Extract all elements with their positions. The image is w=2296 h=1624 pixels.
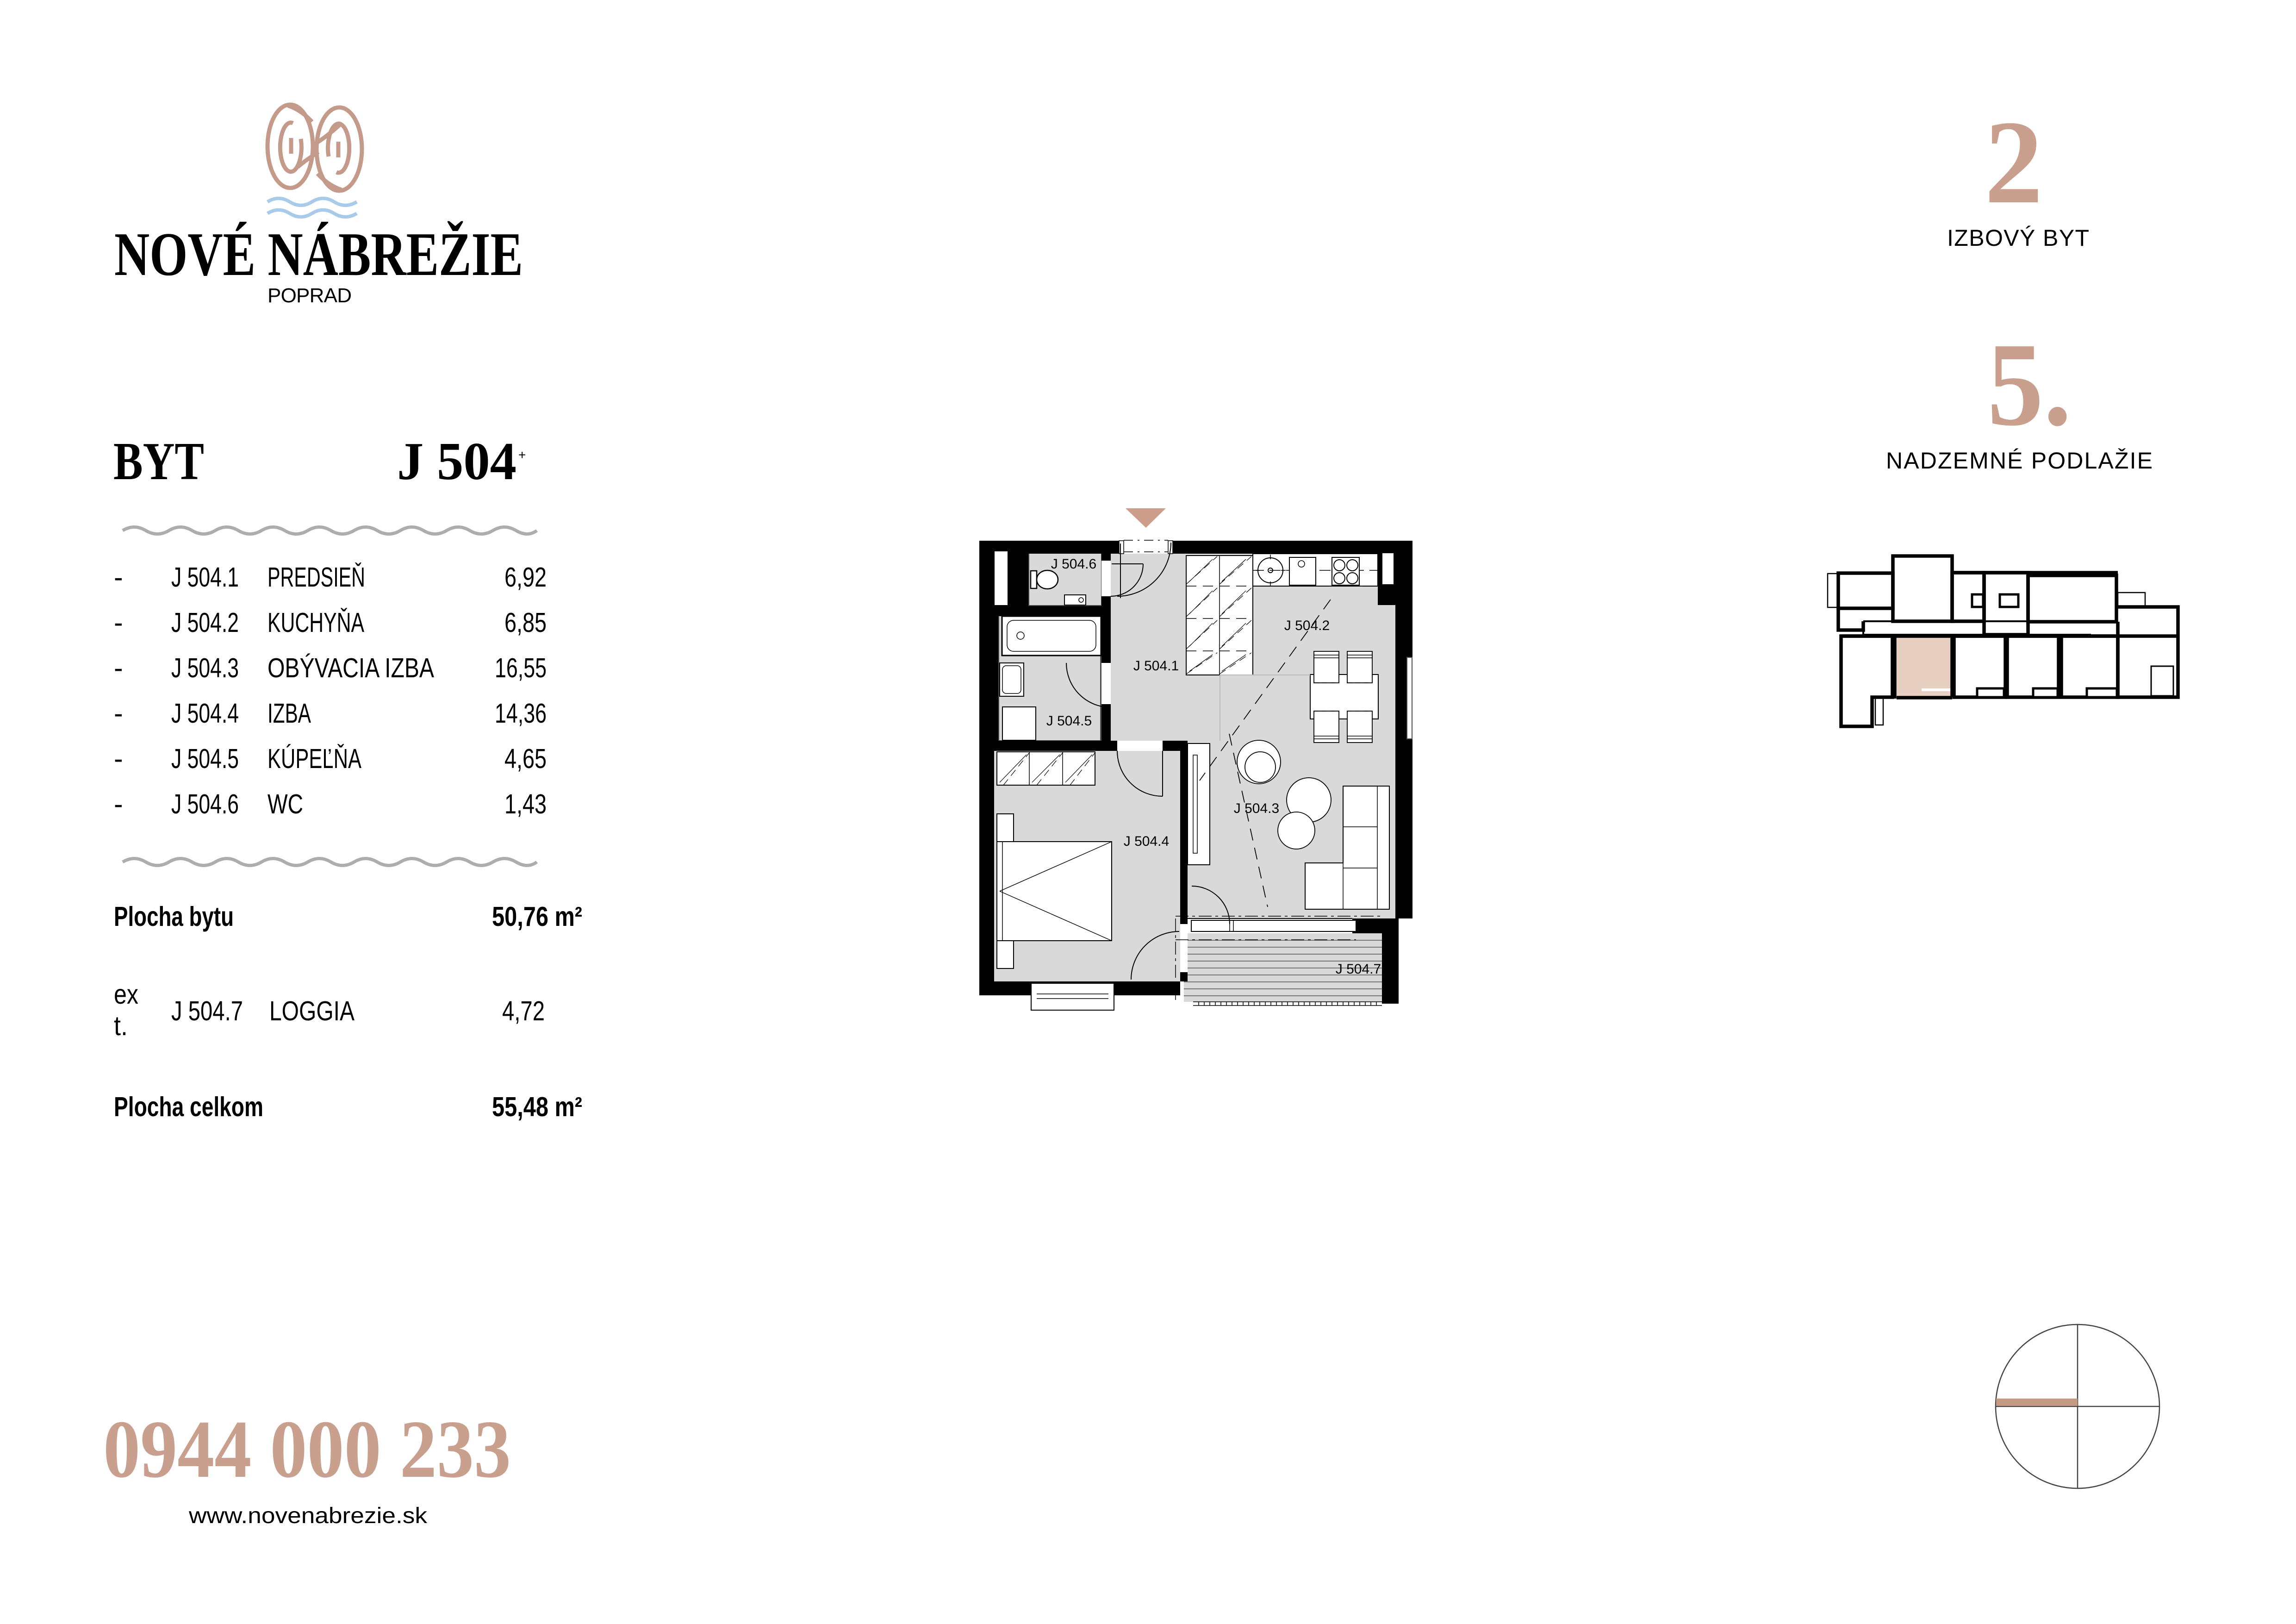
svg-text:www.novenabrezie.sk: www.novenabrezie.sk — [188, 1504, 428, 1528]
svg-text:t.: t. — [114, 1011, 128, 1041]
svg-text:J 504.6: J 504.6 — [171, 789, 239, 819]
svg-text:55,48 m²: 55,48 m² — [492, 1092, 582, 1122]
svg-text:KUCHYŇA: KUCHYŇA — [268, 607, 364, 638]
svg-text:J 504.2: J 504.2 — [171, 607, 239, 638]
svg-text:4,72: 4,72 — [502, 996, 545, 1026]
svg-text:J 504.1: J 504.1 — [171, 562, 239, 593]
svg-text:J 504: J 504 — [397, 432, 516, 491]
svg-text:J 504.7: J 504.7 — [171, 996, 243, 1026]
svg-text:OBÝVACIA IZBA: OBÝVACIA IZBA — [268, 653, 435, 683]
svg-text:POPRAD: POPRAD — [268, 284, 358, 307]
svg-text:ex: ex — [114, 979, 138, 1010]
svg-text:IZBA: IZBA — [268, 698, 311, 729]
svg-text:J 504.5: J 504.5 — [171, 743, 239, 774]
svg-text:50,76 m²: 50,76 m² — [492, 901, 582, 932]
svg-text:14,36: 14,36 — [495, 698, 547, 729]
svg-text:BYT: BYT — [113, 432, 204, 491]
svg-text:J 504.3: J 504.3 — [171, 653, 239, 683]
svg-text:J 504.2: J 504.2 — [1284, 618, 1330, 633]
svg-text:Plocha celkom: Plocha celkom — [114, 1092, 263, 1122]
svg-text:-: - — [114, 789, 123, 819]
svg-text:1,43: 1,43 — [504, 789, 547, 819]
svg-text:PREDSIEŇ: PREDSIEŇ — [268, 562, 365, 593]
svg-text:NOVÉ NÁBREŽIE: NOVÉ NÁBREŽIE — [114, 220, 523, 288]
svg-text:J 504.1: J 504.1 — [1133, 658, 1179, 674]
svg-text:LOGGIA: LOGGIA — [269, 996, 355, 1026]
svg-text:IZBOVÝ BYT: IZBOVÝ BYT — [1947, 225, 2089, 251]
svg-text:-: - — [114, 607, 123, 638]
svg-text:2: 2 — [1985, 96, 2043, 228]
svg-text:NADZEMNÉ PODLAŽIE: NADZEMNÉ PODLAŽIE — [1886, 448, 2153, 474]
svg-text:KÚPEĽŇA: KÚPEĽŇA — [268, 743, 361, 774]
svg-text:-: - — [114, 743, 123, 774]
svg-text:6,92: 6,92 — [504, 562, 547, 593]
svg-text:-: - — [114, 698, 123, 729]
svg-text:WC: WC — [268, 789, 303, 819]
svg-text:-: - — [114, 562, 123, 593]
svg-text:4,65: 4,65 — [504, 743, 547, 774]
svg-text:J 504.3: J 504.3 — [1234, 801, 1279, 816]
svg-text:-: - — [114, 653, 123, 683]
svg-text:Plocha bytu: Plocha bytu — [114, 901, 234, 932]
svg-text:6,85: 6,85 — [504, 607, 547, 638]
svg-text:J 504.7: J 504.7 — [1336, 962, 1381, 977]
svg-text:J 504.5: J 504.5 — [1046, 713, 1092, 729]
svg-text:+: + — [518, 448, 526, 462]
svg-text:16,55: 16,55 — [495, 653, 547, 683]
svg-text:0944 000 233: 0944 000 233 — [103, 1403, 511, 1495]
svg-text:5.: 5. — [1987, 318, 2072, 450]
svg-text:J 504.4: J 504.4 — [1124, 834, 1169, 849]
svg-text:J 504.4: J 504.4 — [171, 698, 239, 729]
svg-text:J 504.6: J 504.6 — [1051, 556, 1096, 572]
